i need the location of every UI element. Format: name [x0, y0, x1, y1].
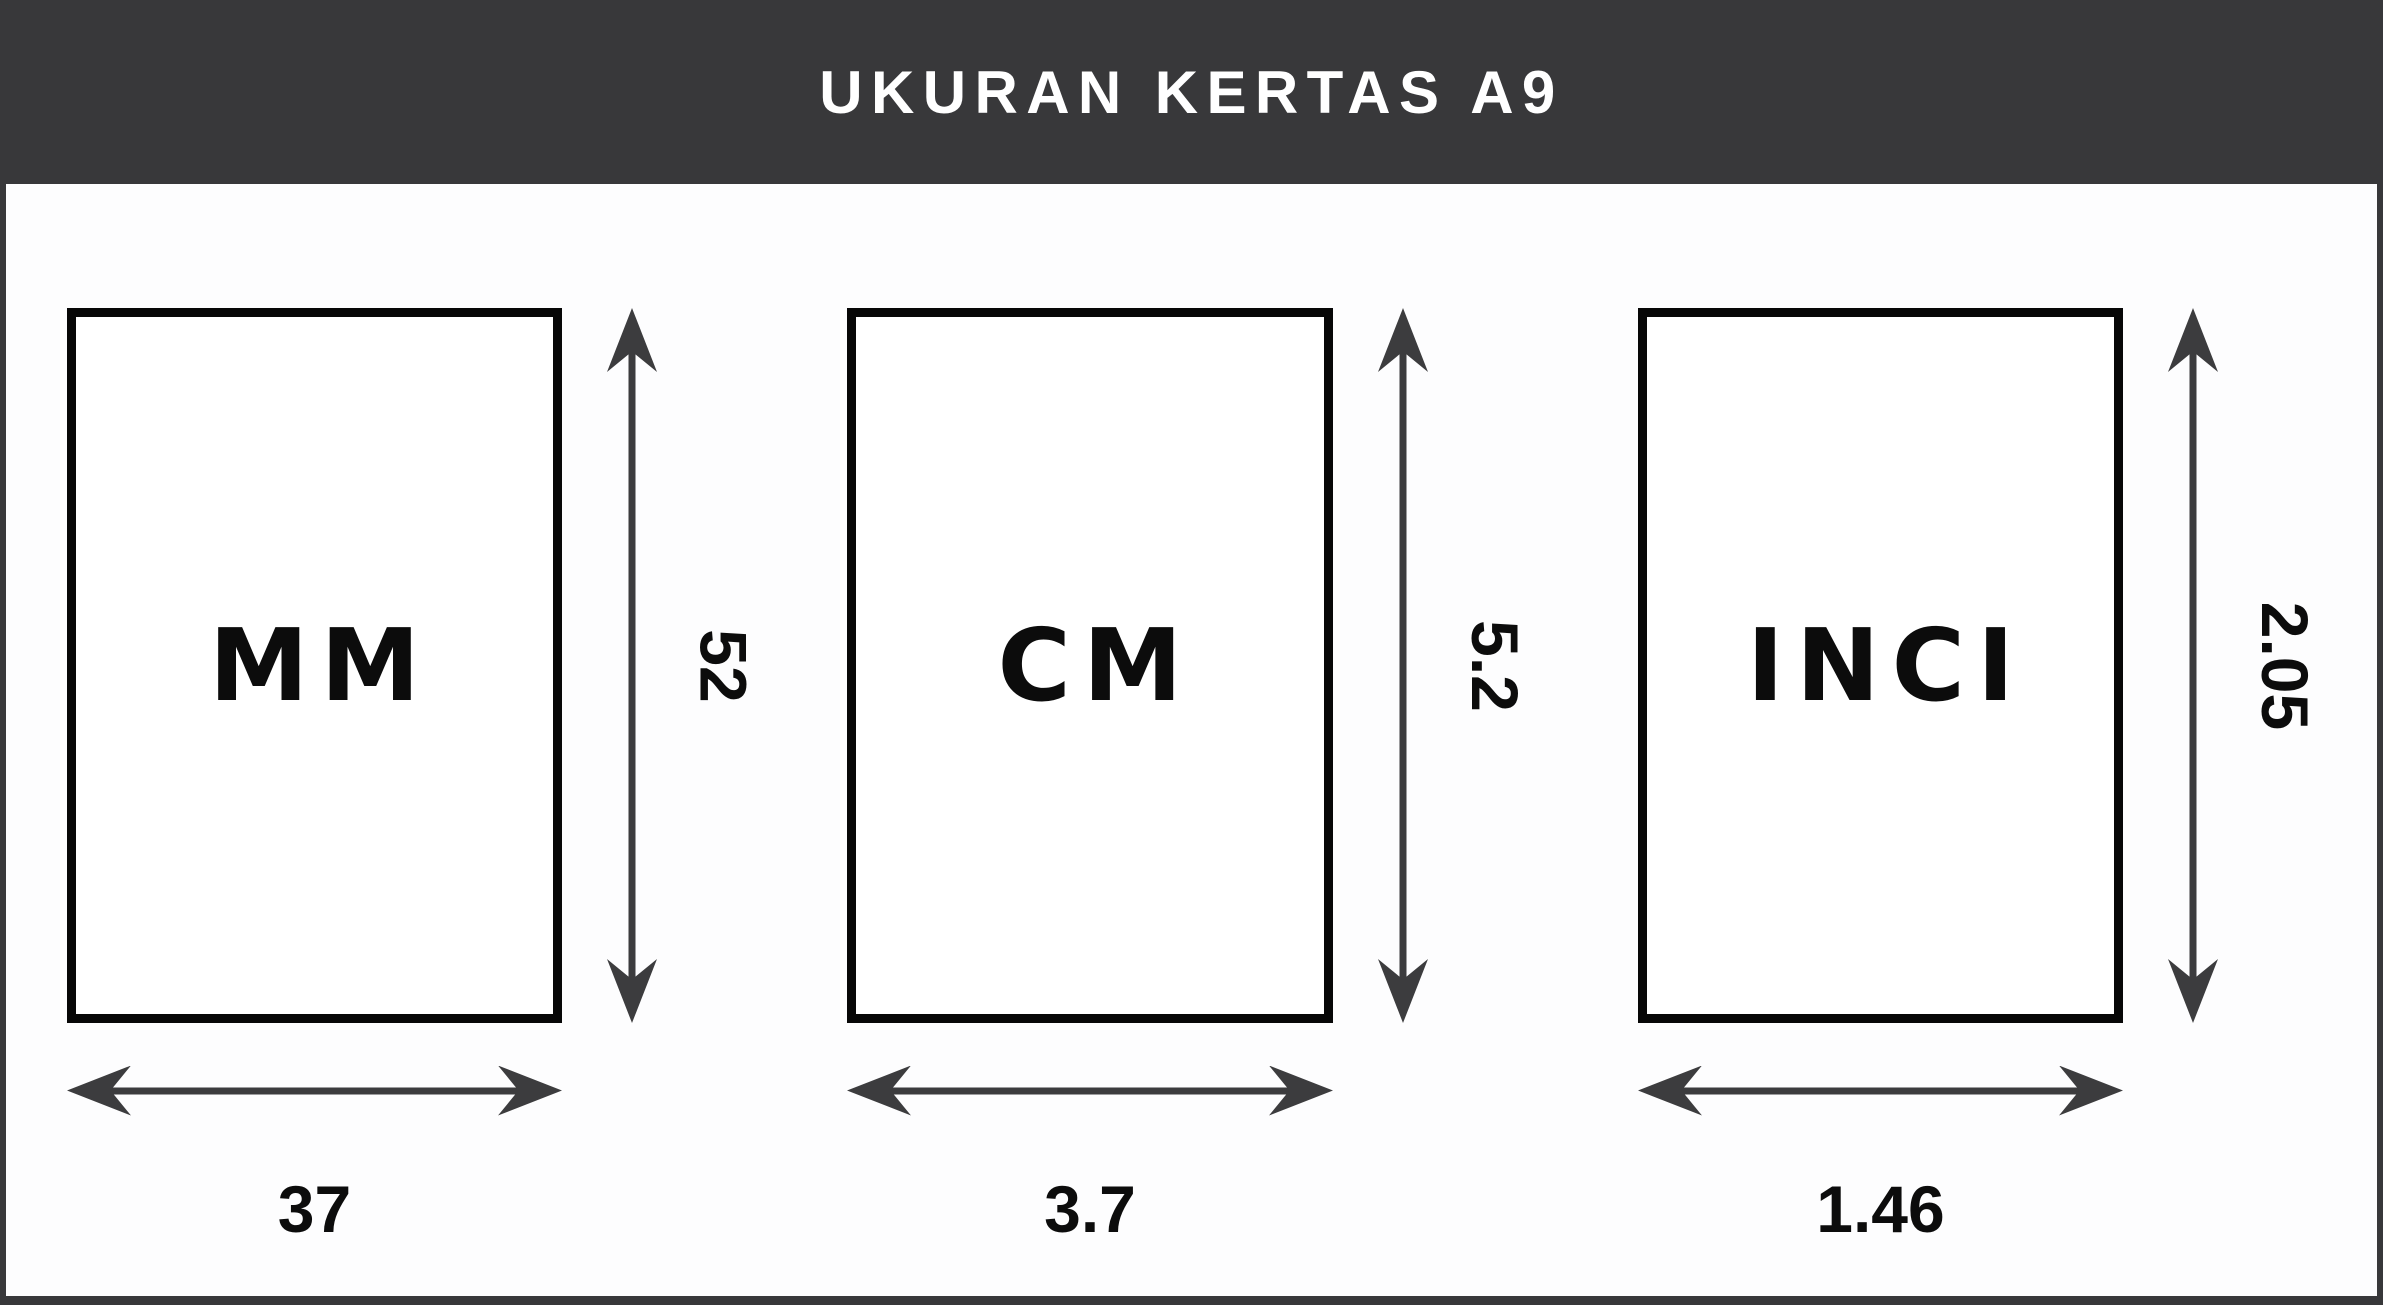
arrow-shaft	[1400, 346, 1407, 985]
height-value: 52	[691, 629, 757, 702]
width-dimension-arrow-icon	[67, 1059, 562, 1123]
height-value-wrap: 52	[702, 308, 746, 1023]
title-bar: UKURAN KERTAS A9	[0, 0, 2383, 184]
content-area: MM 52 37 CM	[0, 184, 2383, 1305]
height-value: 5.2	[1462, 620, 1528, 712]
page-title: UKURAN KERTAS A9	[819, 58, 1563, 127]
height-dimension-arrow-icon	[2158, 308, 2228, 1023]
panel-cm: CM 5.2 3.7	[847, 308, 1517, 1253]
arrow-shaft	[885, 1087, 1295, 1094]
width-value: 3.7	[847, 1158, 1333, 1253]
paper-rectangle: CM	[847, 308, 1333, 1023]
arrow-shaft	[629, 346, 636, 985]
height-dimension-arrow-icon	[1368, 308, 1438, 1023]
paper-rectangle: INCI	[1638, 308, 2123, 1023]
height-value-wrap: 2.05	[2263, 308, 2307, 1023]
unit-label: INCI	[1735, 616, 2027, 716]
panel-mm: MM 52 37	[67, 308, 746, 1253]
panel-inci: INCI 2.05 1.46	[1638, 308, 2307, 1253]
width-dimension-arrow-icon	[1638, 1059, 2123, 1123]
width-value: 37	[67, 1158, 562, 1253]
infographic-canvas: UKURAN KERTAS A9 MM 52 37	[0, 0, 2383, 1305]
height-value-wrap: 5.2	[1473, 308, 1517, 1023]
width-dimension-arrow-icon	[847, 1059, 1333, 1123]
unit-label: MM	[197, 616, 432, 716]
height-value: 2.05	[2252, 601, 2318, 729]
arrow-shaft	[2190, 346, 2197, 985]
height-dimension-arrow-icon	[597, 308, 667, 1023]
paper-rectangle: MM	[67, 308, 562, 1023]
arrow-shaft	[105, 1087, 524, 1094]
width-value: 1.46	[1638, 1158, 2123, 1253]
arrow-shaft	[1676, 1087, 2085, 1094]
unit-label: CM	[986, 616, 1195, 716]
